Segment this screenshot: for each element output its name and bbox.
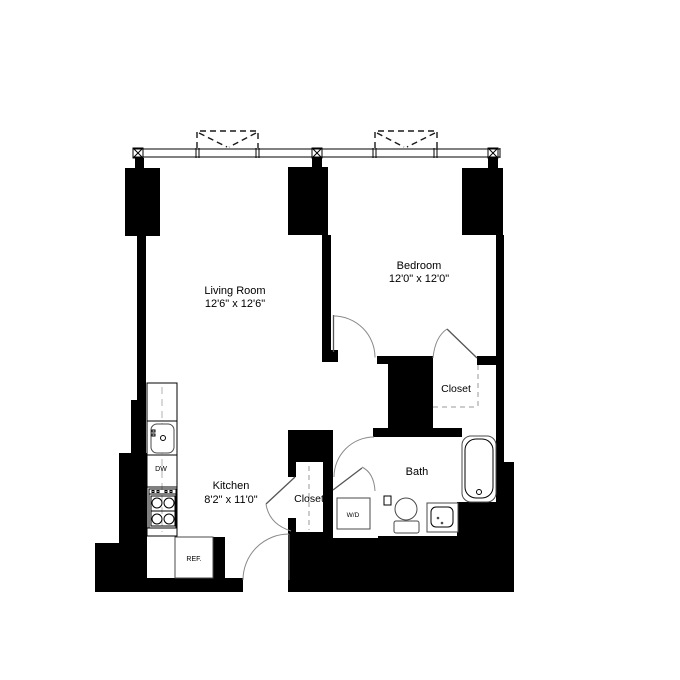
wall-right-mid <box>496 462 514 502</box>
kitchen-label: Kitchen 8'2" x 11'0" <box>204 480 257 506</box>
window-opening-indicator <box>197 131 437 148</box>
kitchen-sink <box>151 424 174 453</box>
bathtub <box>462 436 496 502</box>
bedroom-closet-door-swing <box>433 329 447 358</box>
wall-bath-north <box>373 428 462 437</box>
kitchen-counter: DW REF. <box>147 383 213 578</box>
wall-right-upper <box>496 235 504 462</box>
entry-door-swing <box>243 534 289 580</box>
wall-hall-closet-mass <box>388 362 433 428</box>
wall-bottom-right <box>288 578 514 592</box>
dishwasher-label: DW <box>155 466 167 473</box>
wd-door-leaf <box>333 468 362 490</box>
column-stub <box>312 158 322 168</box>
column <box>288 167 328 235</box>
kitchen-closet-label: Closet <box>294 493 324 505</box>
refrigerator-label: REF. <box>186 556 201 563</box>
bedroom-name: Bedroom <box>397 260 442 272</box>
wall-divider <box>322 235 331 351</box>
toilet <box>394 498 419 533</box>
window-wall <box>133 131 500 158</box>
paper-holder <box>384 496 391 505</box>
wall-divider-foot <box>322 350 338 362</box>
washer-dryer-label: W/D <box>347 512 360 519</box>
bedroom-closet-label: Closet <box>441 383 471 395</box>
bath-sink <box>427 503 458 532</box>
floorplan-drawing: DW REF. <box>0 0 680 680</box>
wall-bath-south <box>378 536 460 578</box>
refrigerator: REF. <box>175 537 213 578</box>
living-room-label: Living Room 12'6" x 12'6" <box>204 285 265 310</box>
wall-closet-east <box>477 356 504 365</box>
wall-ref-stub <box>213 537 225 592</box>
column <box>125 168 160 236</box>
living-room-dims: 12'6" x 12'6" <box>205 298 265 310</box>
wall-left-upper <box>137 236 146 400</box>
column-stub <box>135 158 144 169</box>
column <box>462 168 503 235</box>
wall-left-lower <box>119 453 147 543</box>
wall-left-mid <box>131 400 146 453</box>
wall-corner-se <box>457 502 514 578</box>
bedroom-label: Bedroom 12'0" x 12'0" <box>389 260 449 285</box>
bath-label: Bath <box>406 466 429 478</box>
kitchen-closet-door-swing <box>266 504 291 531</box>
washer-dryer: W/D <box>337 498 370 529</box>
kitchen-name: Kitchen <box>213 480 250 492</box>
wall-corner-sw <box>95 543 147 579</box>
wd-door-swing <box>362 467 375 491</box>
column-stub <box>488 158 498 169</box>
bedroom-closet-door <box>447 329 477 358</box>
kitchen-dims: 8'2" x 11'0" <box>204 494 257 506</box>
wall-below-wd <box>333 538 378 578</box>
bedroom-door-swing <box>334 316 376 358</box>
living-room-name: Living Room <box>204 285 265 297</box>
bedroom-dims: 12'0" x 12'0" <box>389 273 449 285</box>
floorplan-canvas: DW REF. <box>0 0 680 680</box>
